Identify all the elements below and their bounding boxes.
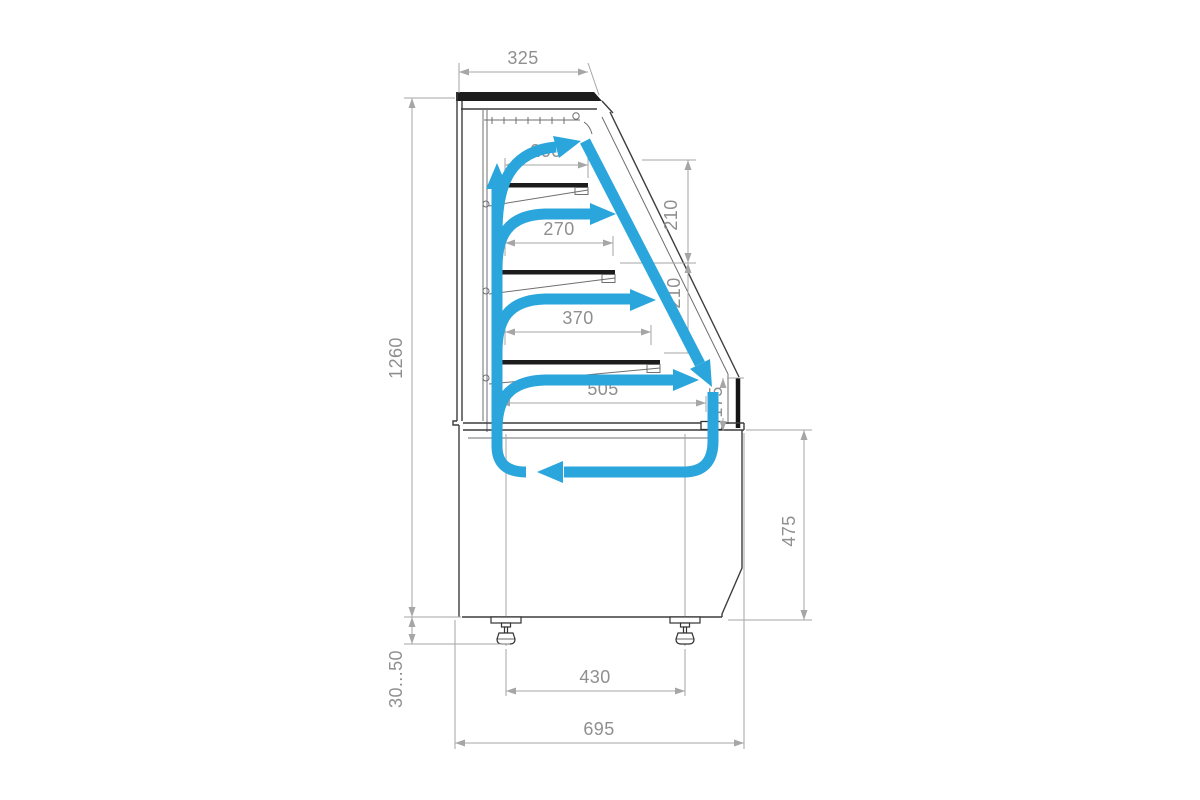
dim-label-430: 430 [579,667,610,687]
dim-label-475: 475 [779,515,799,546]
dim-label-30-50: 30...50 [386,650,406,708]
dimension-annotations: 325 1260 30...50 475 210 [386,48,812,749]
dim-label-695: 695 [583,719,614,739]
dim-leg-spacing: 430 [506,649,685,696]
shelf-2 [489,270,615,294]
airflow-return-arrowhead [537,461,563,483]
dim-label-210-a: 210 [661,199,681,230]
pastry-case-side-view-drawing: 325 1260 30...50 475 210 [0,0,1200,800]
dim-base-height: 475 [728,430,812,620]
dim-overall-depth: 695 [455,433,744,749]
canopy-latch [573,113,579,119]
shelf-2-bracket [489,278,615,294]
dim-label-270: 270 [543,219,574,239]
shelf-pin-2 [483,288,489,294]
airflow-return-duct [564,392,713,472]
technical-drawing-page: 325 1260 30...50 475 210 [0,0,1200,800]
canopy-latch-hook [584,122,592,134]
left-wall-lower [453,421,459,617]
dim-shelf-3-depth: 370 [505,308,651,345]
dim-overall-height: 1260 [386,98,461,617]
right-foot [670,617,700,644]
canopy-top-panel [456,92,602,101]
airflow-branch-shelf3-arrowhead [630,289,656,311]
bottom-deck [463,422,744,439]
leg-centerlines [506,434,685,646]
shelf-pin-3 [483,375,489,381]
dim-label-1260: 1260 [386,337,406,379]
front-glass-outer [610,112,739,377]
canopy-front-slant [602,101,613,113]
left-foot [491,617,521,644]
dim-label-325: 325 [507,48,538,68]
shelf-pin-1 [483,201,489,207]
dim-leg-adjust: 30...50 [386,617,510,708]
dim-top-depth: 325 [459,48,599,95]
dim-label-370: 370 [562,308,593,328]
airflow-branch-shelf2-arrowhead [590,203,616,225]
rear-air-duct-wall [483,109,487,432]
